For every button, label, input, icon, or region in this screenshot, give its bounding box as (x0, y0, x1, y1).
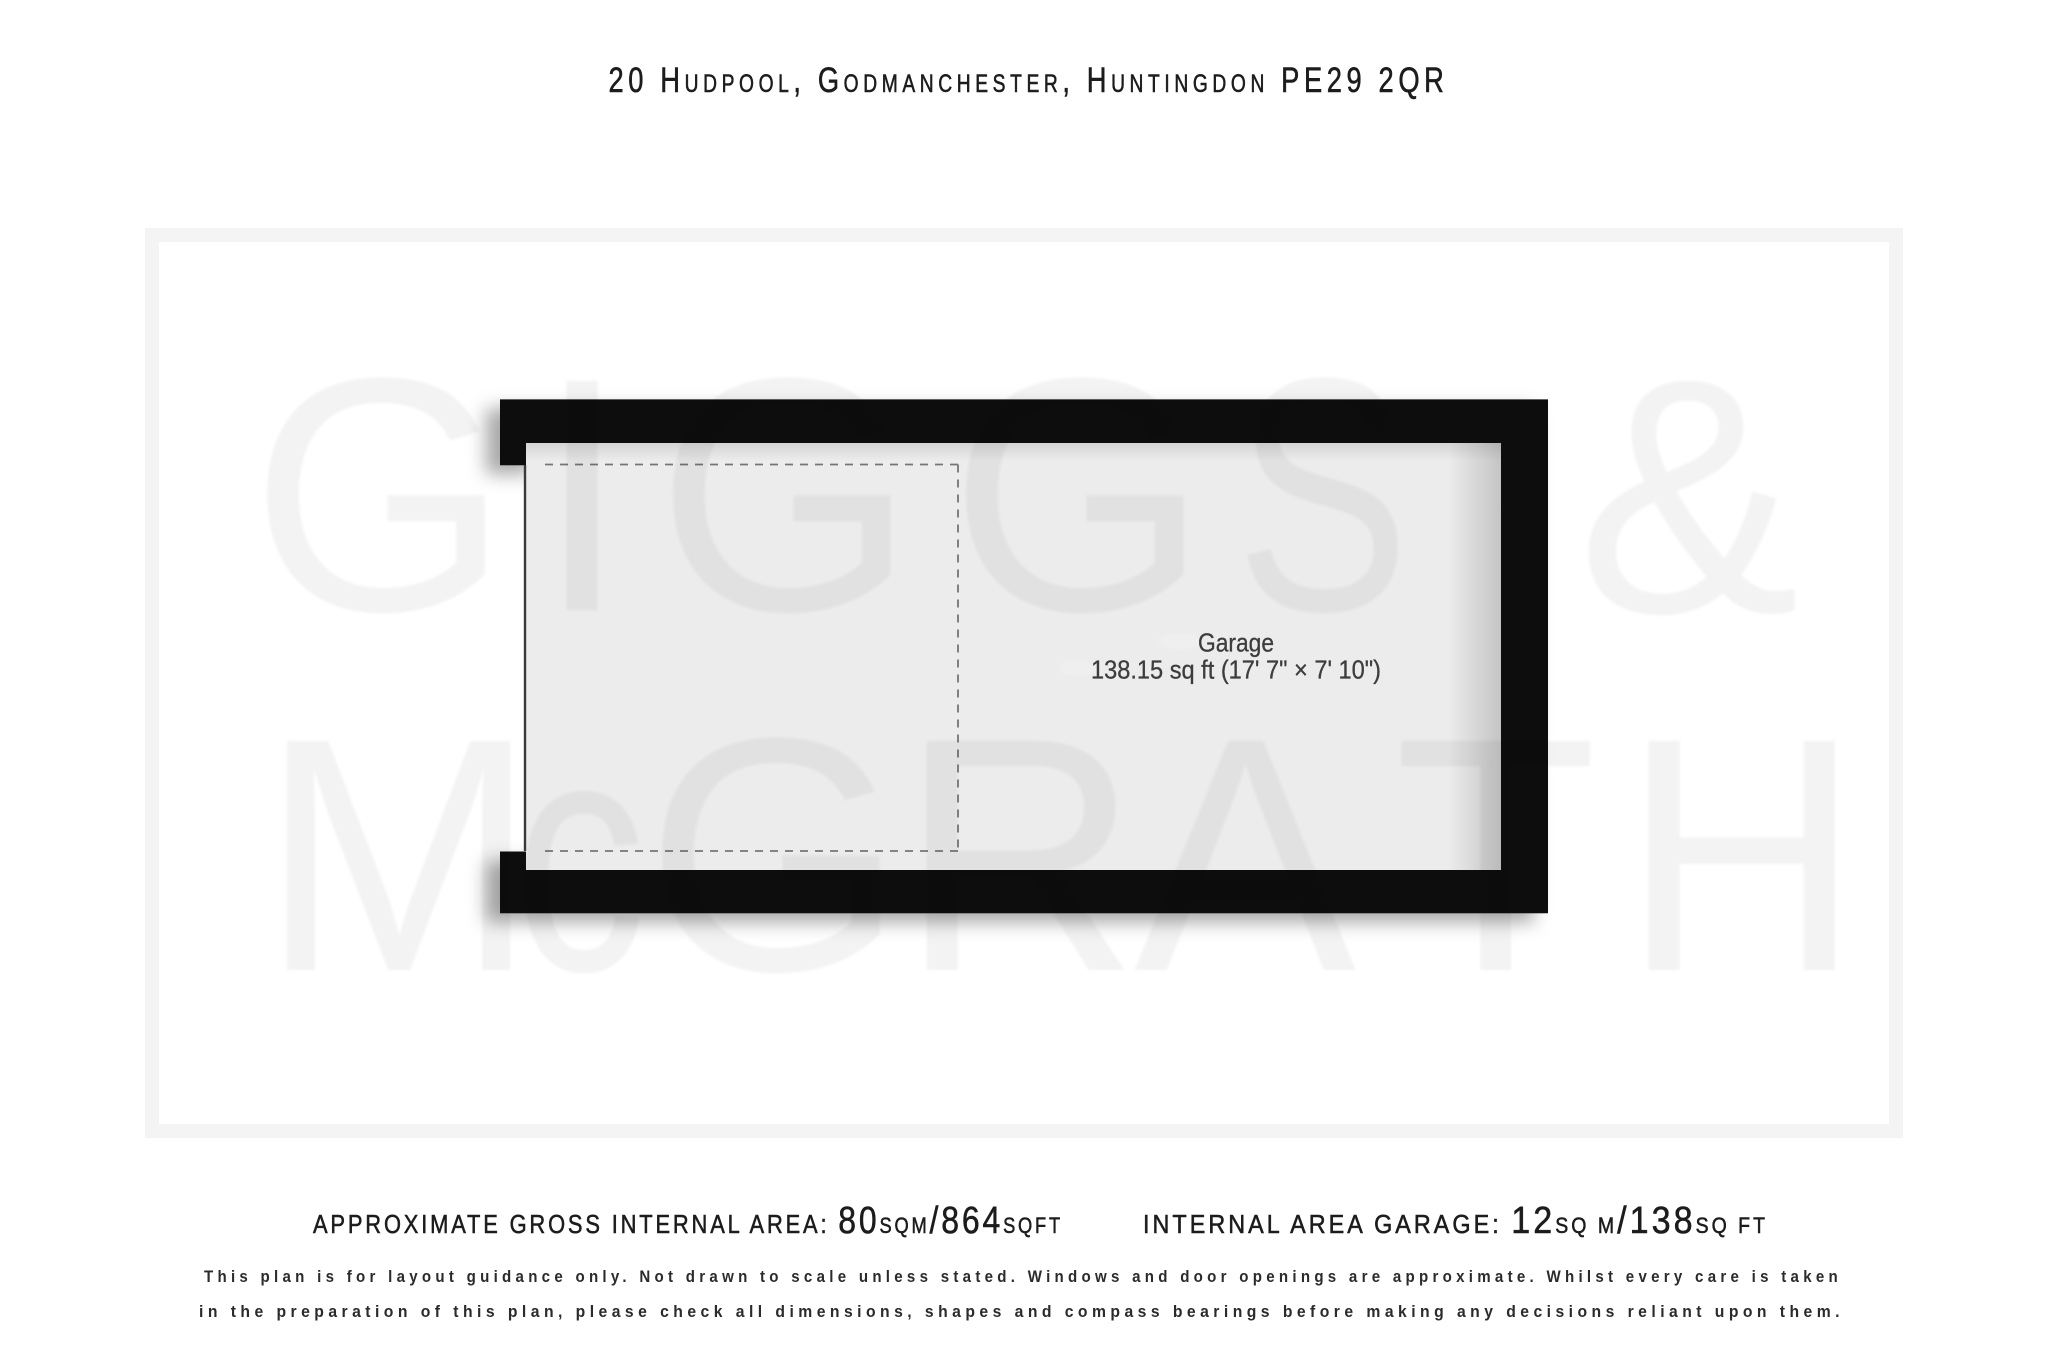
svg-text:This plan is for layout guidan: This plan is for layout guidance only. N… (204, 1268, 1842, 1286)
svg-text:APPROXIMATE GROSS INTERNAL ARE: APPROXIMATE GROSS INTERNAL AREA: 80SQM/8… (313, 1199, 1063, 1242)
svg-text:20 Hudpool, Godmanchester, Hun: 20 Hudpool, Godmanchester, Huntingdon PE… (609, 60, 1449, 100)
svg-text:&: & (1577, 310, 1800, 683)
svg-text:McGRATH: McGRATH (260, 669, 1862, 1041)
svg-text:GIGGS: GIGGS (251, 309, 1410, 681)
svg-text:in the preparation of this pla: in the preparation of this plan, please … (199, 1303, 1844, 1321)
svg-text:138.15 sq ft (17' 7" × 7' 10"): 138.15 sq ft (17' 7" × 7' 10") (1091, 655, 1381, 685)
svg-text:INTERNAL AREA GARAGE: 12SQ M/1: INTERNAL AREA GARAGE: 12SQ M/138SQ FT (1143, 1199, 1768, 1242)
svg-text:Garage: Garage (1198, 628, 1274, 658)
